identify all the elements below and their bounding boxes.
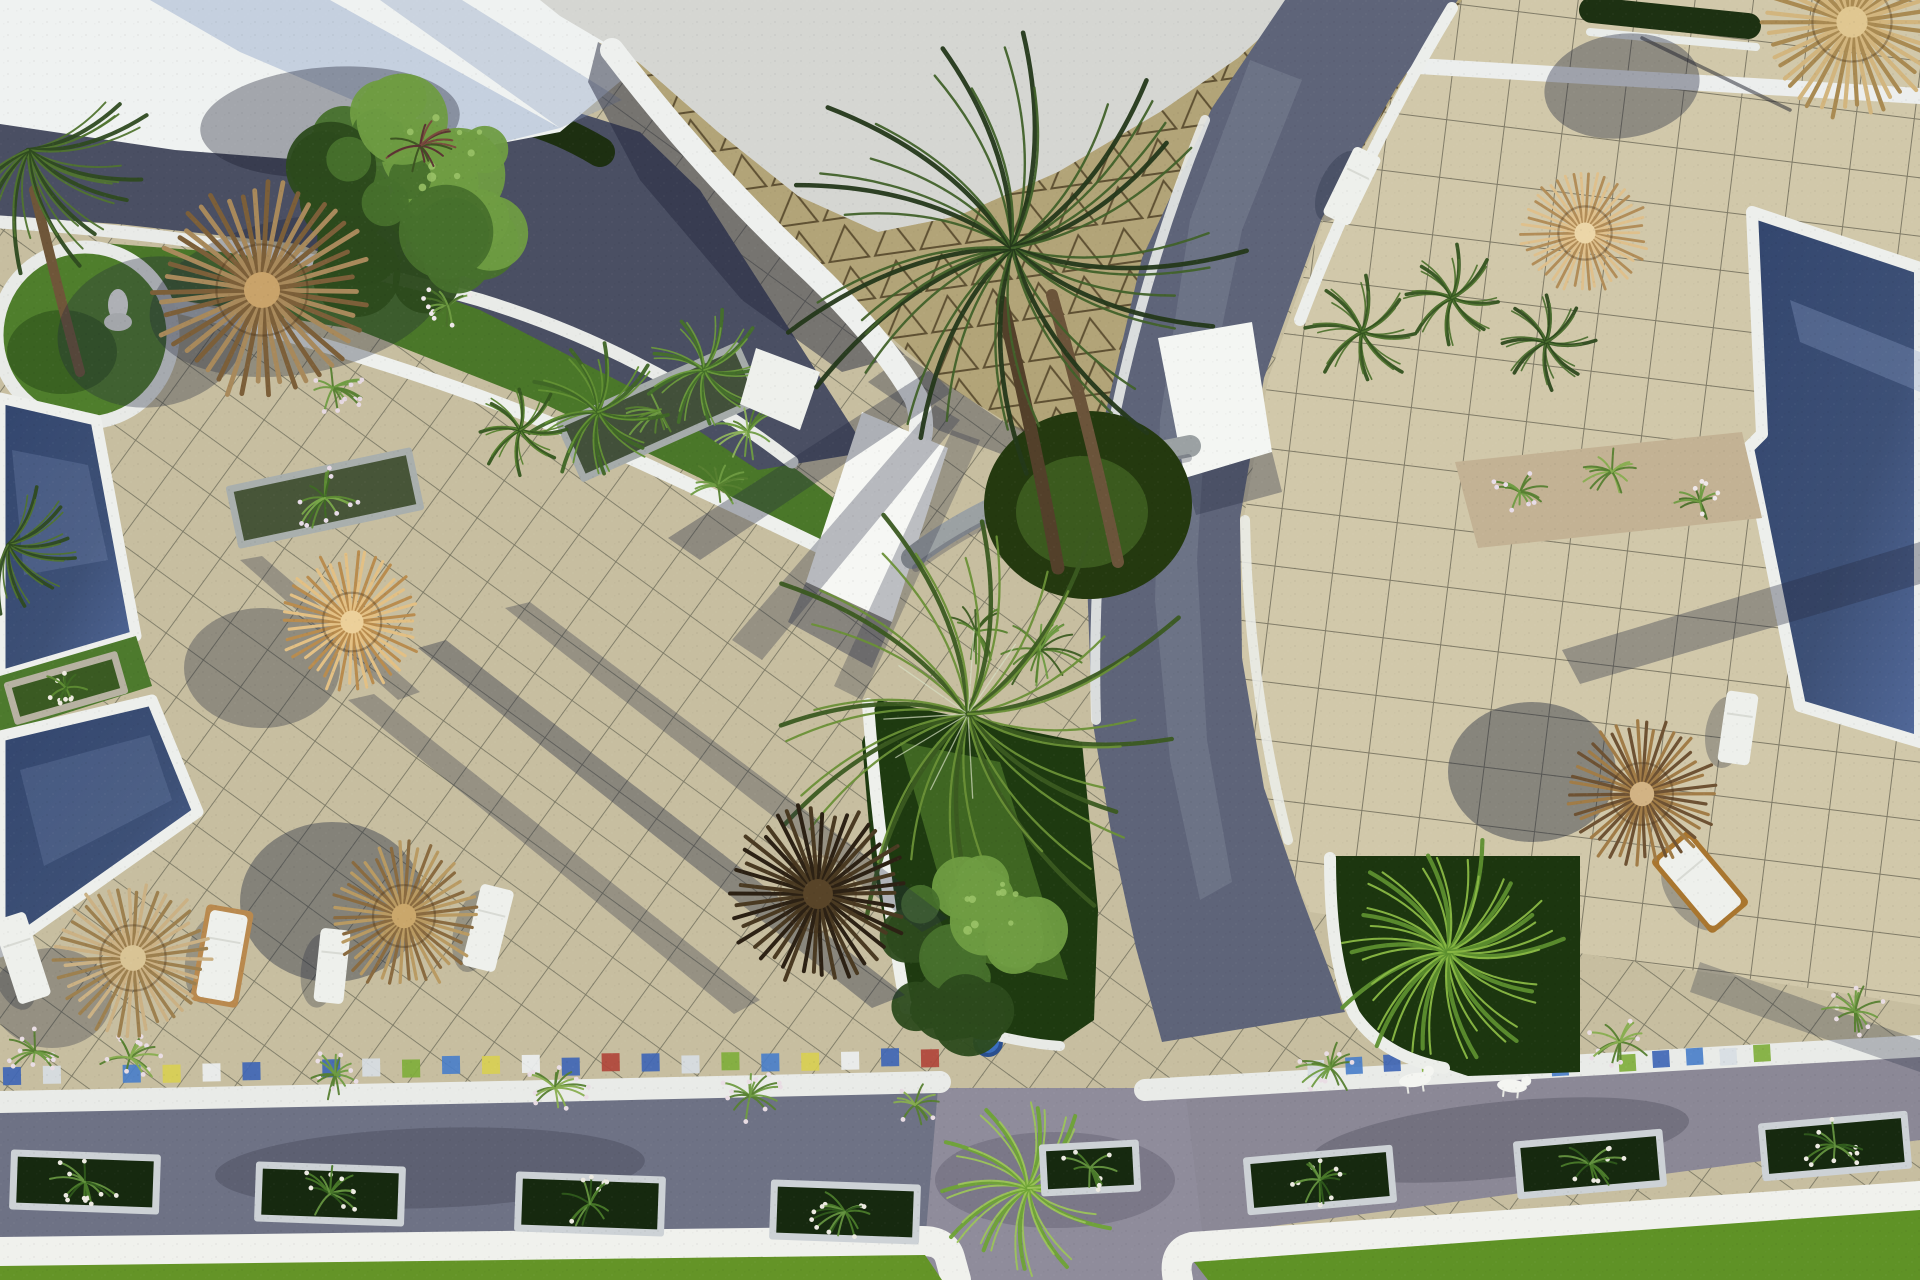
- aerial-resort-rendering: [0, 0, 1920, 1280]
- film-grain: [0, 0, 1920, 1280]
- scene-viewport: [0, 0, 1920, 1280]
- scene-layers: [0, 0, 1920, 1280]
